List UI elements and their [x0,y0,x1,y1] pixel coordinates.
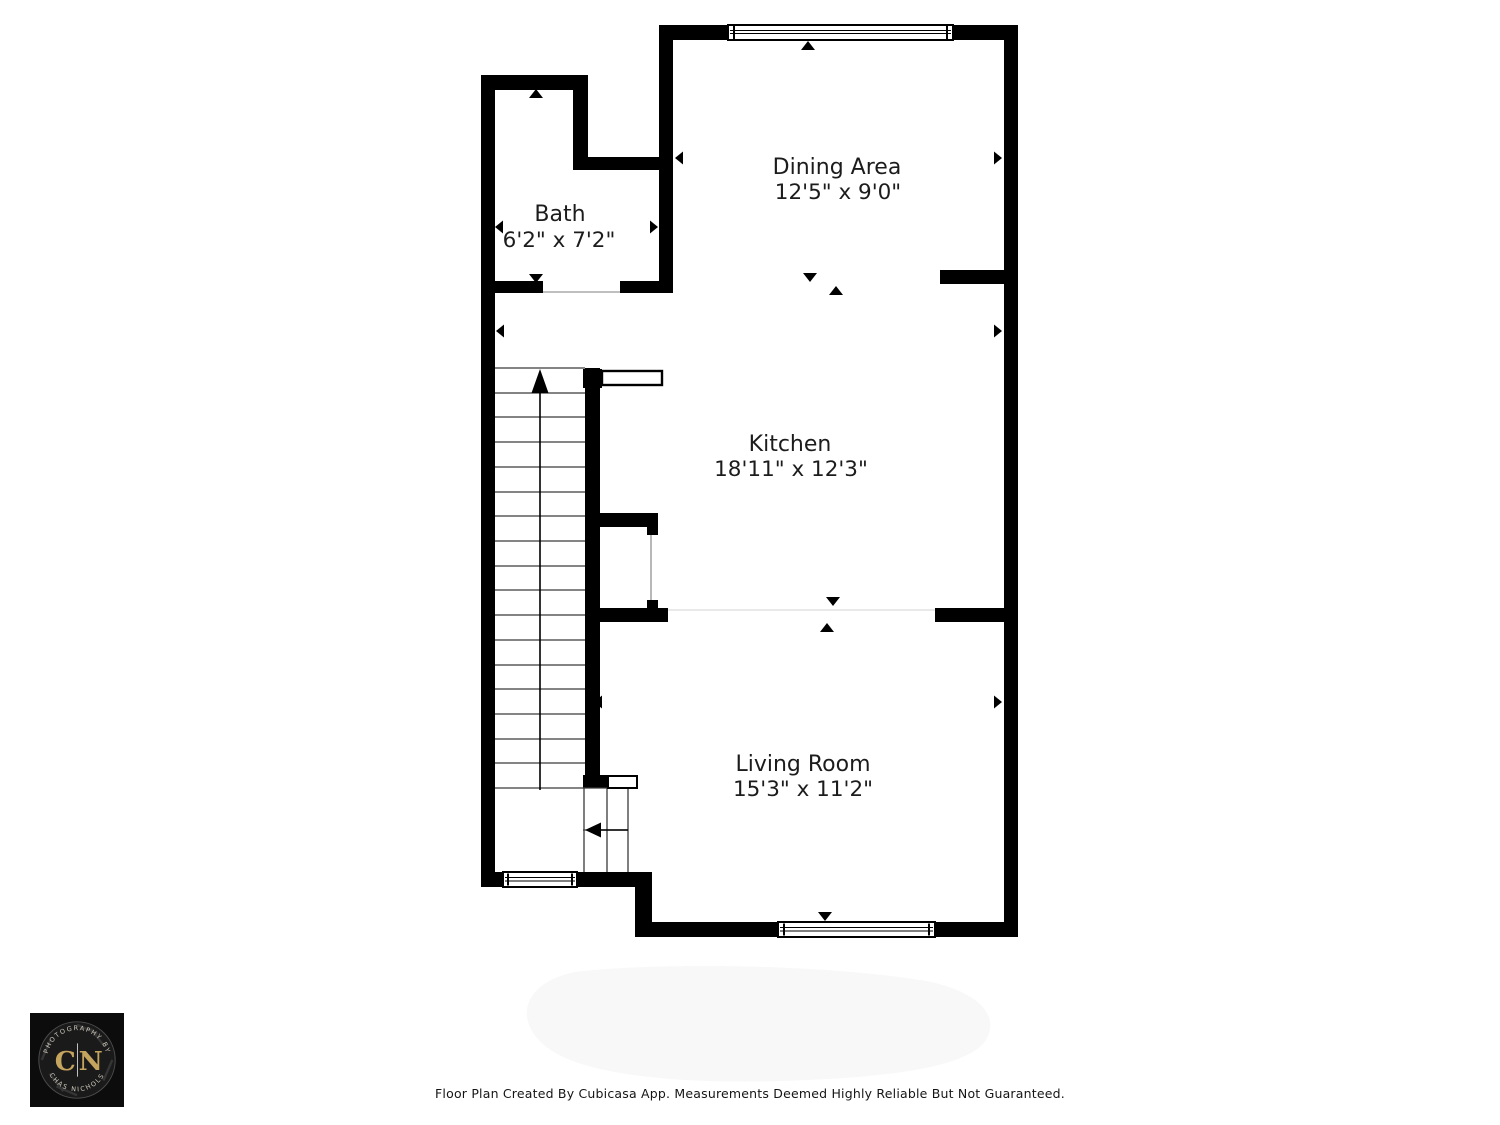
footer-disclaimer: Floor Plan Created By Cubicasa App. Meas… [0,1086,1500,1101]
window-living-bottom [778,922,935,937]
wall-bottom-living-left [635,922,778,937]
kitchen-arrow-up [829,286,843,295]
room-label-bath: Bath [534,202,585,227]
bath-arrow-right [650,221,658,234]
wall-stair-bottom-stub [583,775,608,788]
wall-closet-bottom-tab [647,600,658,608]
wall-stair-top-stub [583,369,602,388]
entry-arrowhead [585,823,601,838]
room-dims-dining: 12'5" x 9'0" [775,180,901,205]
wall-bath-bottom-right [620,281,673,293]
dining-arrow-down [803,273,817,282]
wall-dining-kitchen-stub [940,270,1004,284]
room-labels: Bath 6'2" x 7'2" Dining Area 12'5" x 9'0… [503,155,902,802]
floor-plan-drawing: Bath 6'2" x 7'2" Dining Area 12'5" x 9'0… [0,0,1500,1125]
room-dims-bath: 6'2" x 7'2" [503,228,616,253]
kitchen-arrow-down [826,597,840,606]
stair-up-arrowhead [532,369,549,393]
wall-bath-bottom-left [495,281,543,293]
kitchen-arrow-right [994,325,1002,338]
stair-top-railing [602,371,662,385]
logo-monogram-n: N [79,1046,103,1077]
room-label-living: Living Room [735,752,870,777]
dining-arrow-up [801,41,815,50]
dining-arrow-left [675,152,683,165]
living-arrow-right [994,696,1002,709]
wall-left-exterior [481,75,495,887]
window-entry-bottom-left [503,872,577,887]
wall-kitchen-living-stub [935,608,1004,622]
living-arrow-down [818,912,832,921]
wall-closet-bottom [595,608,668,622]
stair-bottom-railing [608,776,637,788]
wall-closet-top [595,513,658,527]
wall-stair-right [585,368,600,788]
living-arrow-up [820,623,834,632]
opening-lines [543,292,935,610]
room-label-dining: Dining Area [773,155,902,180]
room-label-kitchen: Kitchen [749,432,832,457]
kitchen-arrow-left [496,325,504,338]
watermark-blob [527,966,991,1082]
wall-closet-top-tab [647,527,658,535]
bath-arrow-up [529,89,543,98]
window-dining-top [728,25,953,40]
logo-monogram-c: C [55,1046,76,1077]
room-dims-living: 15'3" x 11'2" [733,777,873,802]
wall-bath-top [481,75,588,90]
room-dims-kitchen: 18'11" x 12'3" [714,457,868,482]
dining-arrow-right [994,152,1002,165]
wall-right-exterior [1004,25,1018,937]
wall-bottom-left-a [481,872,503,887]
wall-bottom-living-right [935,922,1018,937]
floor-plan-page: Bath 6'2" x 7'2" Dining Area 12'5" x 9'0… [0,0,1500,1125]
